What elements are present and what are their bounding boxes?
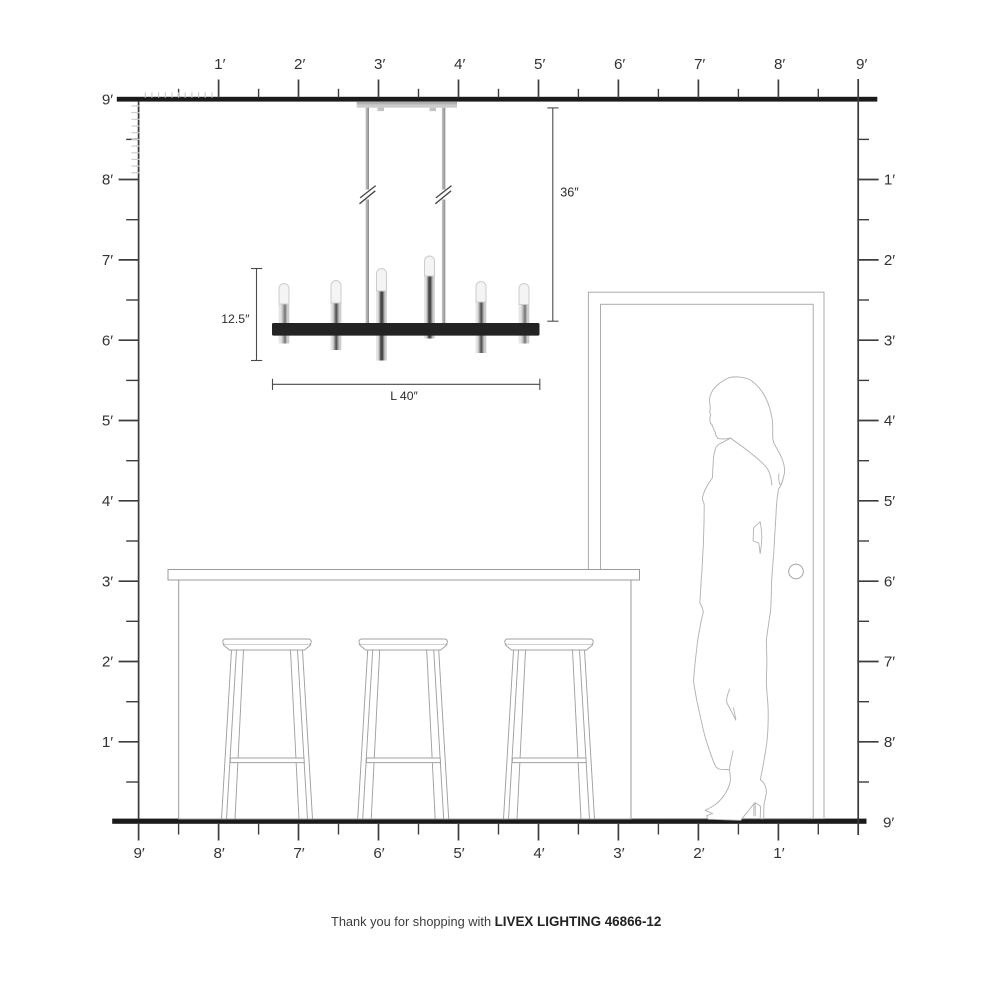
svg-text:6′: 6′ (614, 56, 625, 73)
svg-text:4′: 4′ (533, 845, 544, 862)
svg-text:L 40″: L 40″ (390, 389, 418, 403)
svg-text:5′: 5′ (884, 493, 895, 510)
svg-text:12.5″: 12.5″ (221, 312, 250, 326)
svg-text:2′: 2′ (102, 654, 113, 671)
svg-text:4′: 4′ (102, 493, 113, 510)
svg-text:1′: 1′ (773, 845, 784, 862)
svg-text:8′: 8′ (102, 172, 113, 189)
svg-text:8′: 8′ (213, 845, 224, 862)
svg-text:4′: 4′ (454, 56, 465, 73)
svg-text:8′: 8′ (884, 734, 895, 751)
svg-text:2′: 2′ (294, 56, 305, 73)
svg-text:7′: 7′ (884, 654, 895, 671)
svg-text:9′: 9′ (102, 91, 113, 108)
svg-text:3′: 3′ (884, 332, 895, 349)
svg-text:Thank you for shopping with LI: Thank you for shopping with LIVEX LIGHTI… (331, 914, 661, 929)
svg-text:4′: 4′ (884, 413, 895, 430)
svg-text:7′: 7′ (293, 845, 304, 862)
svg-text:9′: 9′ (856, 56, 867, 73)
svg-text:5′: 5′ (453, 845, 464, 862)
svg-text:6′: 6′ (373, 845, 384, 862)
svg-text:3′: 3′ (102, 573, 113, 590)
svg-text:8′: 8′ (774, 56, 785, 73)
svg-text:36″: 36″ (560, 185, 579, 199)
svg-text:3′: 3′ (374, 56, 385, 73)
svg-text:6′: 6′ (884, 573, 895, 590)
svg-text:5′: 5′ (102, 413, 113, 430)
svg-text:2′: 2′ (884, 252, 895, 269)
svg-text:1′: 1′ (102, 734, 113, 751)
svg-text:9′: 9′ (133, 845, 144, 862)
svg-text:6′: 6′ (102, 332, 113, 349)
svg-text:9′: 9′ (883, 815, 894, 832)
svg-text:2′: 2′ (693, 845, 704, 862)
svg-text:3′: 3′ (613, 845, 624, 862)
svg-text:1′: 1′ (884, 172, 895, 189)
svg-text:7′: 7′ (694, 56, 705, 73)
svg-text:7′: 7′ (102, 252, 113, 269)
svg-text:5′: 5′ (534, 56, 545, 73)
svg-text:1′: 1′ (214, 56, 225, 73)
